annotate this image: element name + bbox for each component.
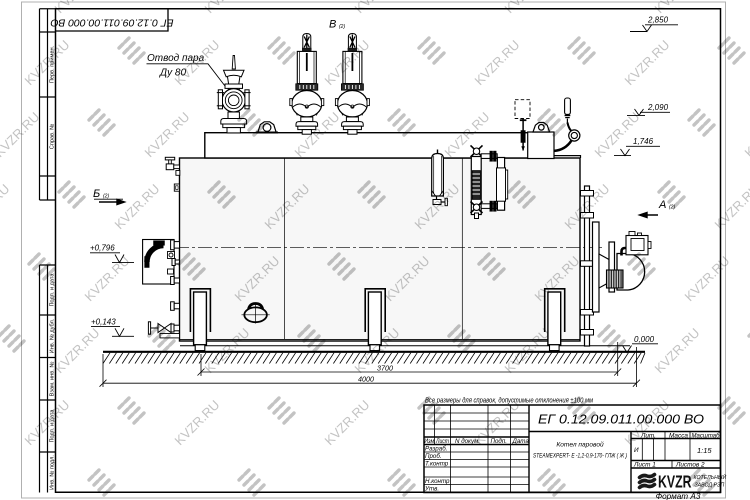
svg-text:0,000: 0,000 bbox=[634, 335, 655, 344]
svg-text:1:15: 1:15 bbox=[697, 446, 712, 455]
svg-text:Листов 2: Листов 2 bbox=[675, 462, 705, 469]
svg-text:Подп. и дата: Подп. и дата bbox=[50, 273, 56, 307]
svg-text:Б: Б bbox=[93, 188, 100, 200]
svg-text:Т.контр: Т.контр bbox=[425, 461, 449, 468]
svg-text:(2): (2) bbox=[103, 194, 109, 200]
svg-text:1,746: 1,746 bbox=[633, 137, 654, 146]
svg-text:+0,143: +0,143 bbox=[91, 318, 116, 327]
svg-text:А: А bbox=[658, 199, 666, 211]
svg-text:4000: 4000 bbox=[358, 375, 374, 384]
svg-text:3700: 3700 bbox=[377, 364, 393, 373]
svg-text:+0,796: +0,796 bbox=[90, 244, 115, 253]
svg-text:Котел паровой: Котел паровой bbox=[556, 441, 604, 449]
svg-text:Инв. № дубл.: Инв. № дубл. bbox=[50, 318, 56, 353]
svg-text:Лист: Лист bbox=[435, 438, 449, 445]
svg-text:Формат А3: Формат А3 bbox=[656, 492, 701, 500]
svg-text:Проб.: Проб. bbox=[425, 453, 442, 460]
svg-text:ЕГ 0.12.09.011.00.000 ВО: ЕГ 0.12.09.011.00.000 ВО bbox=[50, 17, 173, 29]
svg-text:STEAMEXPERT- Е -1,2-0,9-170- Г: STEAMEXPERT- Е -1,2-0,9-170- ГЛЖ ( Ж ) bbox=[533, 453, 627, 460]
svg-text:И: И bbox=[634, 447, 639, 454]
svg-text:Изм: Изм bbox=[424, 438, 435, 445]
svg-text:Лист 1: Лист 1 bbox=[633, 462, 656, 469]
svg-text:Разраб.: Разраб. bbox=[425, 446, 447, 453]
svg-text:KVZR: KVZR bbox=[658, 472, 692, 492]
svg-text:Утв.: Утв. bbox=[424, 486, 439, 493]
svg-text:(2): (2) bbox=[339, 24, 345, 30]
svg-text:Подп.: Подп. bbox=[491, 438, 507, 445]
svg-text:В: В bbox=[329, 19, 336, 31]
svg-text:Н.контр: Н.контр bbox=[425, 478, 450, 485]
svg-text:Дата: Дата bbox=[512, 438, 530, 445]
svg-text:ЕГ 0.12.09.011.00.000 ВО: ЕГ 0.12.09.011.00.000 ВО bbox=[538, 412, 704, 427]
svg-text:Масса: Масса bbox=[669, 432, 688, 439]
svg-text:2,850: 2,850 bbox=[647, 16, 669, 25]
svg-text:2,090: 2,090 bbox=[647, 103, 669, 112]
svg-text:Справ. №: Справ. № bbox=[50, 124, 56, 149]
svg-text:Масштаб: Масштаб bbox=[692, 431, 720, 439]
svg-text:Инв. № подл.: Инв. № подл. bbox=[50, 455, 56, 490]
